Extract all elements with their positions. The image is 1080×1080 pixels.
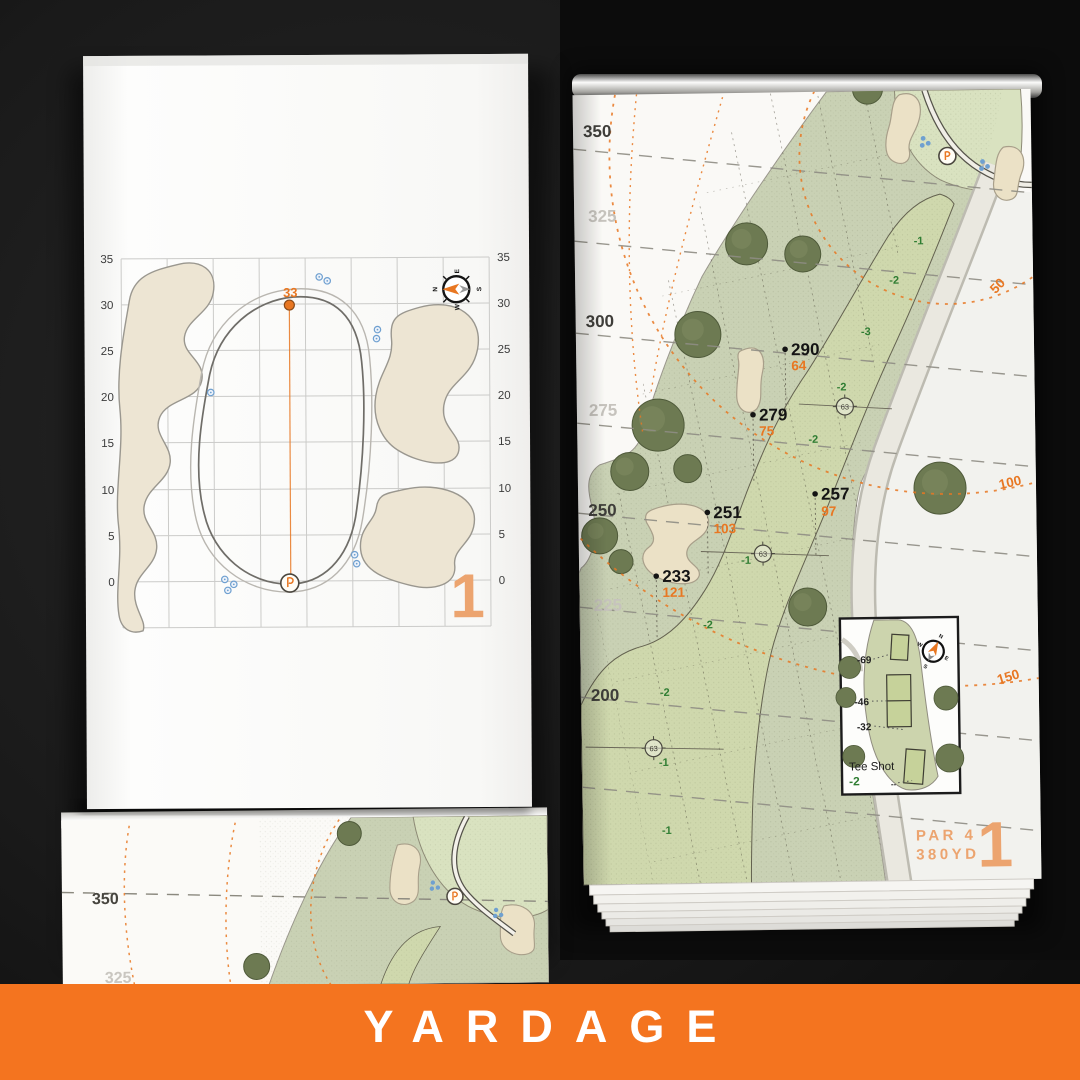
svg-text:64: 64 [791,358,807,373]
svg-text:30: 30 [101,300,114,312]
green-page: 33 3530 2520 1510 50 [83,54,532,809]
svg-text:--: -- [891,780,897,789]
svg-text:-1: -1 [914,235,924,247]
svg-text:15: 15 [498,436,511,448]
svg-text:10: 10 [101,485,114,497]
page-stack [590,879,1035,932]
svg-text:35: 35 [100,254,113,266]
svg-text:-1: -1 [662,825,672,837]
svg-text:-2: -2 [703,619,713,631]
svg-text:-3: -3 [861,326,871,338]
svg-text:75: 75 [759,423,775,438]
svg-text:25: 25 [498,344,511,356]
peek-yardage-350: 350 [92,891,119,908]
svg-text:-2: -2 [660,687,670,699]
svg-text:233: 233 [662,567,691,586]
svg-text:N: N [432,287,439,292]
svg-text:5: 5 [499,529,505,541]
hole-marker [939,147,956,164]
svg-text:30: 30 [497,298,510,310]
svg-text:251: 251 [713,503,742,522]
svg-text:-32: -32 [857,722,872,733]
svg-text:121: 121 [662,585,685,600]
svg-text:0: 0 [108,577,114,589]
svg-text:35: 35 [497,252,510,264]
tee-shot-inset: -69 -46 -32 -- Tee Shot -2 N E S W [835,617,964,795]
tee-shot-title: Tee Shot [849,761,895,774]
svg-text:-1: -1 [741,555,751,567]
svg-text:-2: -2 [808,434,818,446]
tee-shot-slope: -2 [849,774,860,788]
svg-text:290: 290 [791,340,820,359]
svg-text:63: 63 [649,744,657,753]
svg-text:-69: -69 [857,655,872,666]
green-front-marker [281,574,299,592]
svg-text:380YD: 380YD [916,846,980,864]
left-booklet: 350 325 [61,54,551,988]
svg-text:0: 0 [499,575,505,587]
svg-text:103: 103 [713,521,736,536]
banner-title: YARDAGE [364,1001,739,1052]
svg-text:PAR 4: PAR 4 [916,827,977,845]
svg-text:W: W [454,303,461,310]
svg-text:20: 20 [498,390,511,402]
svg-text:-2: -2 [837,381,847,393]
scene: 63 63 63 -1 -2 -3 -2 -2 -1 [0,0,1080,1080]
svg-text:-46: -46 [854,697,869,708]
svg-text:20: 20 [101,392,114,404]
pin-distance: 33 [283,285,298,300]
green-page-hole-number: 1 [450,562,485,631]
svg-text:S: S [476,286,483,291]
svg-text:97: 97 [821,504,836,519]
svg-text:63: 63 [841,402,849,411]
svg-text:257: 257 [821,484,850,503]
svg-text:-2: -2 [889,275,899,287]
pin-dot [284,300,294,310]
svg-text:63: 63 [759,550,767,559]
svg-text:5: 5 [108,531,114,543]
svg-text:10: 10 [498,483,511,495]
svg-text:1: 1 [977,808,1014,880]
svg-text:279: 279 [759,405,788,424]
banner: YARDAGE [0,984,1080,1080]
svg-text:15: 15 [101,438,114,450]
next-page-peek: 350 325 [61,807,551,987]
svg-text:E: E [454,268,461,273]
yardage-book-poster: 63 63 63 -1 -2 -3 -2 -2 -1 [0,0,1080,1080]
svg-text:-1: -1 [659,757,669,769]
svg-text:25: 25 [101,346,114,358]
